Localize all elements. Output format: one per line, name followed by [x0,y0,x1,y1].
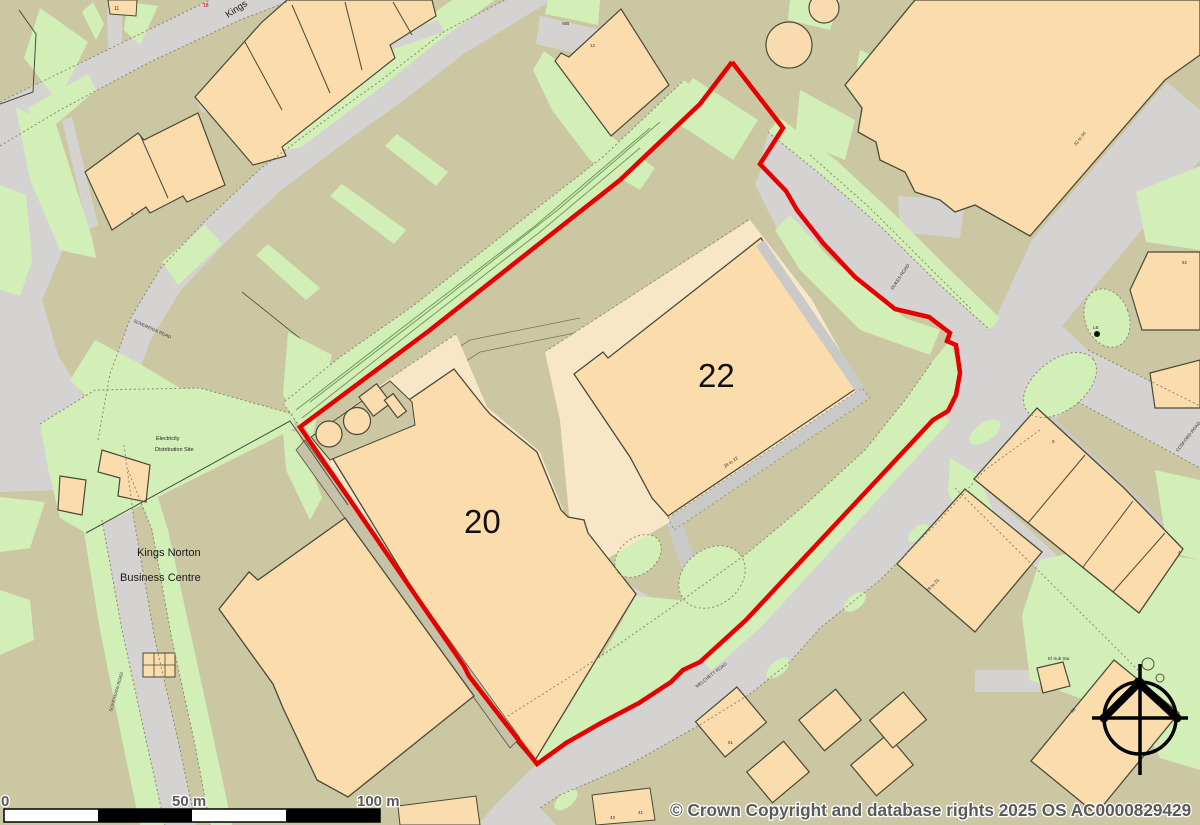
svg-text:Business Centre: Business Centre [120,572,201,584]
svg-text:41: 41 [638,810,644,815]
svg-text:© Crown Copyright and database: © Crown Copyright and database rights 20… [670,800,1191,820]
svg-text:43: 43 [610,815,616,820]
svg-text:100 m: 100 m [357,793,400,810]
svg-text:11: 11 [114,6,119,12]
svg-text:0: 0 [1,793,9,810]
svg-text:62: 62 [1182,260,1188,265]
svg-text:61: 61 [728,740,734,745]
svg-text:20: 20 [464,503,501,540]
svg-text:22: 22 [698,357,735,394]
svg-text:50 m: 50 m [172,793,206,810]
svg-text:Distribution Site: Distribution Site [155,447,194,453]
svg-text:LB: LB [1093,325,1099,330]
svg-text:18: 18 [203,3,209,9]
svg-text:WB: WB [562,21,569,26]
svg-text:Electricity: Electricity [156,436,180,442]
svg-text:Kings Norton: Kings Norton [137,547,201,559]
svg-text:12: 12 [590,43,596,48]
svg-text:El Sub Sta: El Sub Sta [1048,656,1070,661]
